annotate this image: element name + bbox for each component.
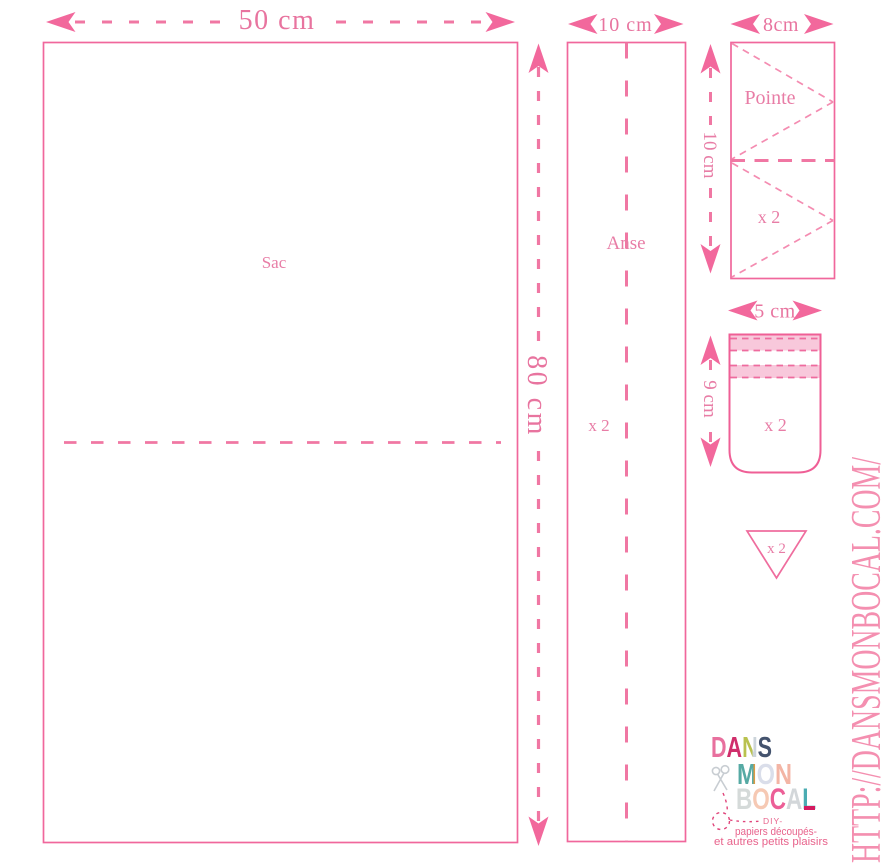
- svg-text:10 cm: 10 cm: [598, 14, 652, 36]
- svg-text:x 2: x 2: [758, 207, 781, 227]
- svg-text:Pointe: Pointe: [744, 87, 795, 109]
- svg-text:9 cm: 9 cm: [699, 380, 720, 418]
- svg-text:10 cm: 10 cm: [699, 132, 720, 179]
- svg-text:5 cm: 5 cm: [754, 301, 795, 323]
- svg-text:Anse: Anse: [606, 233, 645, 254]
- svg-text:x 2: x 2: [767, 541, 786, 557]
- svg-text:HTTP://DANSMONBOCAL.COM/: HTTP://DANSMONBOCAL.COM/: [844, 457, 886, 863]
- svg-text:50 cm: 50 cm: [239, 5, 316, 36]
- svg-text:80 cm: 80 cm: [521, 355, 552, 437]
- svg-text:BOCAL: BOCAL: [736, 783, 816, 816]
- svg-text:DIY-: DIY-: [763, 816, 783, 826]
- svg-text:x 2: x 2: [764, 415, 787, 435]
- svg-text:x 2: x 2: [588, 416, 609, 435]
- svg-text:8cm: 8cm: [763, 14, 799, 36]
- svg-text:Sac: Sac: [262, 253, 287, 272]
- svg-text:et autres petits plaisirs: et autres petits plaisirs: [714, 836, 829, 848]
